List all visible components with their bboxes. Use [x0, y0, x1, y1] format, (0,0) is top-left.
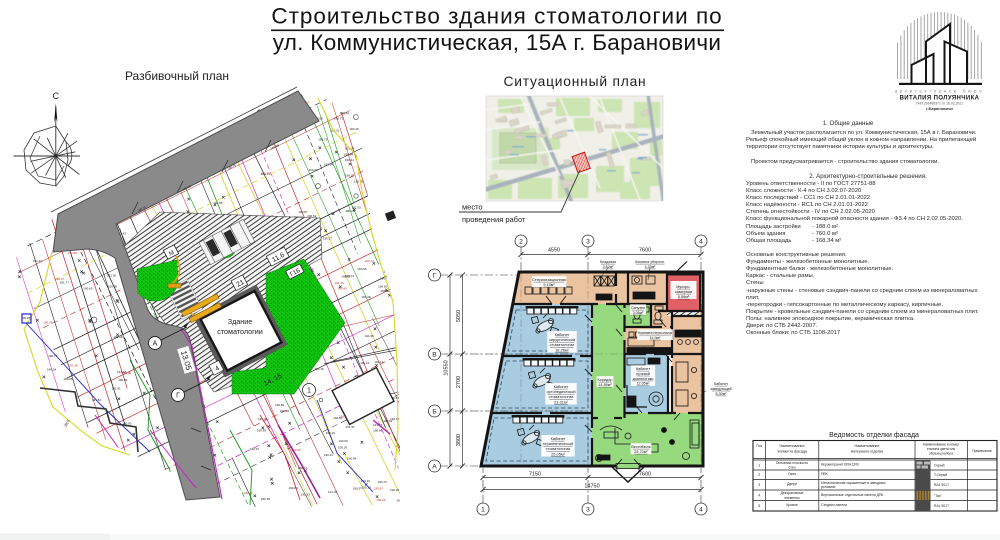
svg-text:2: 2 — [758, 473, 760, 477]
svg-text:3: 3 — [586, 238, 590, 245]
svg-text:Оконные блоки: по СТБ 1108-201: Оконные блоки: по СТБ 1108-2017 — [746, 330, 840, 336]
svg-text:190.65: 190.65 — [63, 377, 73, 381]
svg-text:Кабинет: Кабинет — [714, 382, 728, 386]
svg-text:Площадь застройки: Площадь застройки — [746, 223, 801, 230]
svg-text:архитектурное бюро: архитектурное бюро — [895, 89, 985, 94]
svg-text:ПВХ: ПВХ — [821, 472, 829, 476]
svg-text:3.05м²: 3.05м² — [633, 311, 644, 315]
svg-text:ул. Коммунистическая, 15А г. Б: ул. Коммунистическая, 15А г. Барановичи — [273, 30, 722, 55]
svg-text:5.56м²: 5.56м² — [678, 295, 690, 299]
svg-text:191.58: 191.58 — [69, 364, 79, 368]
svg-text:191.19: 191.19 — [335, 281, 345, 285]
svg-text:диагностики: диагностики — [633, 377, 654, 381]
svg-text:5: 5 — [758, 504, 760, 508]
svg-text:190.56: 190.56 — [108, 285, 118, 289]
svg-text:191.95: 191.95 — [213, 201, 223, 205]
svg-text:190.69: 190.69 — [257, 429, 267, 433]
svg-text:190.16: 190.16 — [326, 431, 336, 435]
svg-text:7150: 7150 — [529, 472, 541, 478]
svg-text:190.23: 190.23 — [345, 209, 355, 213]
svg-text:Г: Г — [176, 393, 180, 400]
svg-text:Здание: Здание — [228, 317, 253, 326]
svg-text:191.51: 191.51 — [346, 425, 356, 429]
svg-text:23.31м²: 23.31м² — [554, 399, 568, 404]
svg-text:190.20: 190.20 — [309, 168, 319, 172]
svg-text:Г: Г — [433, 272, 437, 279]
svg-text:25.05м²: 25.05м² — [551, 451, 565, 456]
svg-text:Окна: Окна — [788, 472, 796, 476]
svg-text:190.65: 190.65 — [83, 287, 93, 291]
svg-text:190.87: 190.87 — [374, 486, 384, 490]
svg-text:190.82: 190.82 — [383, 419, 393, 423]
svg-text:Мусоро-: Мусоро- — [676, 285, 691, 289]
svg-text:Декоративные: Декоративные — [781, 491, 804, 495]
svg-text:190.73: 190.73 — [334, 117, 344, 121]
svg-text:Двери: Двери — [787, 482, 797, 486]
svg-text:Комната уборочн.: Комната уборочн. — [635, 260, 665, 264]
svg-text:1: 1 — [758, 463, 760, 467]
svg-text:191.30: 191.30 — [107, 274, 117, 278]
svg-text:Класс надёжности - RC1 по СН 2: Класс надёжности - RC1 по СН 2.01.01-202… — [746, 202, 868, 208]
svg-text:190.84: 190.84 — [344, 153, 354, 157]
svg-text:190.65: 190.65 — [261, 497, 271, 501]
svg-text:191.21: 191.21 — [360, 361, 370, 365]
svg-text:191.54: 191.54 — [324, 162, 334, 166]
svg-text:8.30м²: 8.30м² — [716, 392, 728, 396]
svg-text:1: 1 — [481, 506, 485, 513]
svg-text:191.93: 191.93 — [301, 492, 311, 496]
svg-text:Класс последствий - СС1 по СН: Класс последствий - СС1 по СН 2.01.01-20… — [746, 194, 870, 201]
svg-text:191.77: 191.77 — [60, 281, 70, 285]
svg-text:190.27: 190.27 — [323, 237, 333, 241]
svg-text:территории отсутствует памятни: территории отсутствует памятники истории… — [746, 144, 934, 150]
svg-text:условиях: условиях — [821, 485, 836, 489]
svg-text:Полы: наливное эпоксидное покр: Полы: наливное эпоксидное покрытие, кера… — [746, 316, 915, 322]
svg-text:Проектом предусматривается - с: Проектом предусматривается - строительст… — [751, 159, 939, 165]
svg-text:Объем здания: Объем здания — [746, 231, 785, 237]
svg-text:10550: 10550 — [444, 360, 450, 375]
svg-text:4: 4 — [758, 494, 760, 498]
svg-text:г.Барановичи: г.Барановичи — [926, 106, 953, 111]
svg-text:А: А — [153, 341, 158, 348]
svg-text:190.28: 190.28 — [361, 295, 371, 299]
svg-text:место: место — [462, 203, 483, 212]
svg-text:7600: 7600 — [639, 248, 651, 254]
svg-text:190.56: 190.56 — [341, 275, 351, 279]
svg-text:190.26: 190.26 — [338, 445, 348, 449]
svg-text:191.81: 191.81 — [112, 387, 122, 391]
svg-text:190.90: 190.90 — [339, 439, 349, 443]
svg-text:Кладовая: Кладовая — [600, 260, 616, 264]
svg-text:Кровля: Кровля — [786, 503, 797, 507]
svg-text:Общая площадь: Общая площадь — [746, 238, 792, 244]
svg-text:190.44: 190.44 — [340, 111, 350, 115]
svg-text:заведующей: заведующей — [710, 387, 732, 391]
svg-text:Ситуационный план: Ситуационный план — [504, 74, 647, 89]
svg-text:Т.Серый: Т.Серый — [934, 473, 947, 477]
svg-text:А: А — [432, 463, 437, 470]
svg-text:Комната персонала: Комната персонала — [638, 331, 673, 335]
svg-text:Коридор: Коридор — [598, 378, 613, 382]
svg-text:стоматологии: стоматологии — [217, 327, 263, 336]
svg-text:191.42: 191.42 — [33, 259, 43, 263]
svg-text:12.05м²: 12.05м² — [637, 382, 651, 386]
svg-text:Уровень ответственности - II п: Уровень ответственности - II по ГОСТ 277… — [746, 181, 876, 187]
svg-text:Класс функциональной пожарной: Класс функциональной пожарной опасности … — [746, 215, 963, 222]
svg-text:Двери: по СТБ 2442-2007.: Двери: по СТБ 2442-2007. — [746, 323, 818, 329]
svg-text:Стены: Стены — [746, 280, 764, 286]
svg-text:191.66: 191.66 — [68, 251, 78, 255]
svg-text:ВИТАЛИЯ ПОЛУЯНЧИКА: ВИТАЛИЯ ПОЛУЯНЧИКА — [900, 96, 980, 102]
svg-text:образец колера: образец колера — [929, 452, 953, 456]
svg-text:190.21: 190.21 — [324, 453, 334, 457]
svg-text:Б: Б — [432, 408, 436, 415]
svg-text:4: 4 — [699, 238, 703, 245]
svg-text:материала отделки: материала отделки — [851, 450, 883, 454]
svg-text:эталона цвета или: эталона цвета или — [927, 447, 956, 451]
svg-text:Рельеф спокойный имеющий общий: Рельеф спокойный имеющий общий уклон в ю… — [746, 136, 976, 143]
svg-text:190.66: 190.66 — [373, 428, 383, 432]
svg-text:190.76: 190.76 — [378, 480, 388, 484]
svg-text:190.50: 190.50 — [333, 416, 343, 420]
svg-text:камерная: камерная — [675, 290, 692, 294]
svg-text:Ведомость отделки фасада: Ведомость отделки фасада — [829, 432, 919, 439]
svg-text:2: 2 — [519, 238, 523, 245]
svg-text:С: С — [53, 91, 60, 101]
svg-text:190.26: 190.26 — [376, 498, 386, 502]
svg-text:190.97: 190.97 — [250, 447, 260, 451]
svg-text:190.50: 190.50 — [378, 284, 388, 288]
svg-text:190.96: 190.96 — [357, 267, 367, 271]
svg-text:25.70м²: 25.70м² — [634, 450, 648, 454]
svg-text:14750: 14750 — [584, 484, 599, 490]
svg-text:-наружные стены - стеновые сэ: -наружные стены - стеновые сэндвич-панел… — [746, 288, 977, 294]
svg-text:- 188.0 м²: - 188.0 м² — [812, 224, 838, 230]
svg-text:3800: 3800 — [456, 434, 462, 446]
svg-text:11.9м²: 11.9м² — [650, 336, 661, 340]
svg-text:Фундаменты - железобетонные мо: Фундаменты - железобетонные монолитные. — [746, 259, 870, 265]
svg-text:2. Архитектурно-строительные р: 2. Архитектурно-строительные решения. — [809, 173, 927, 180]
svg-text:3.82м²: 3.82м² — [603, 265, 614, 269]
svg-text:Примечание: Примечание — [972, 449, 992, 453]
svg-text:Класс сложности - К-4 по СН 3.: Класс сложности - К-4 по СН 3.02.07-2020 — [746, 188, 862, 194]
svg-text:Покрытие - кровельные сэндвич-: Покрытие - кровельные сэндвич-панели со … — [746, 309, 979, 315]
svg-text:Наименование: Наименование — [780, 444, 805, 448]
svg-text:Стерилизационная: Стерилизационная — [532, 278, 566, 282]
svg-text:проведения работ: проведения работ — [462, 215, 526, 224]
svg-text:5050: 5050 — [456, 310, 462, 322]
svg-text:Керамогранит 600х1200: Керамогранит 600х1200 — [821, 463, 859, 467]
svg-text:190.18: 190.18 — [314, 367, 324, 371]
svg-text:Санузел: Санузел — [631, 306, 645, 310]
svg-text:"Тик": "Тик" — [934, 494, 943, 498]
svg-text:190.40: 190.40 — [349, 127, 359, 131]
svg-text:18.26м²: 18.26м² — [555, 347, 569, 352]
svg-text:191.95: 191.95 — [365, 334, 375, 338]
svg-text:191.19: 191.19 — [113, 335, 123, 339]
svg-text:7600: 7600 — [639, 472, 651, 478]
svg-text:4550: 4550 — [548, 248, 560, 254]
svg-text:190.29: 190.29 — [345, 174, 355, 178]
svg-text:Каркас - стальные рамы.: Каркас - стальные рамы. — [746, 273, 815, 279]
svg-text:191.45: 191.45 — [328, 490, 338, 494]
svg-text:Вестибюль: Вестибюль — [631, 445, 651, 449]
svg-text:190.20: 190.20 — [390, 488, 400, 492]
svg-text:-перегородки - гипсокартонные: -перегородки - гипсокартонные по металли… — [746, 302, 943, 308]
svg-text:Строительство здания стоматоло: Строительство здания стоматологии по — [271, 4, 722, 29]
svg-text:Серый: Серый — [934, 464, 945, 468]
svg-text:190.73: 190.73 — [365, 259, 375, 263]
svg-text:Металлические окрашенные в зав: Металлические окрашенные в заводских — [821, 481, 886, 485]
svg-text:190.59: 190.59 — [43, 321, 53, 325]
svg-text:Вертикальные отделочные панели: Вертикальные отделочные панели ДПК — [821, 493, 883, 497]
svg-text:4.35м²: 4.35м² — [645, 265, 656, 269]
svg-text:Наименование и номер: Наименование и номер — [923, 443, 959, 447]
svg-text:190.57: 190.57 — [353, 487, 363, 491]
svg-text:190.54: 190.54 — [47, 368, 57, 372]
svg-text:стен: стен — [789, 466, 796, 470]
svg-text:2700: 2700 — [456, 376, 462, 388]
svg-text:Основные конструктивные решени: Основные конструктивные решения. — [746, 252, 847, 258]
svg-text:Наименование: Наименование — [855, 444, 880, 448]
svg-text:190.83: 190.83 — [275, 403, 285, 407]
svg-text:лучевой: лучевой — [636, 372, 650, 376]
svg-text:RAL 9017: RAL 9017 — [934, 483, 949, 487]
svg-text:Разбивочный план: Разбивочный план — [125, 69, 229, 83]
svg-text:Фундаментные балки - железобет: Фундаментные балки - железобетонные моно… — [746, 266, 893, 272]
svg-text:- 168.34 м²: - 168.34 м² — [812, 238, 841, 244]
svg-text:190.77: 190.77 — [261, 171, 271, 175]
svg-text:14.89м²: 14.89м² — [598, 383, 612, 387]
svg-text:190.41: 190.41 — [345, 158, 355, 162]
svg-text:190.84: 190.84 — [118, 378, 128, 382]
svg-text:плит,: плит, — [746, 295, 760, 301]
svg-text:Сэндвич-панели: Сэндвич-панели — [821, 503, 847, 507]
svg-text:190.94: 190.94 — [347, 457, 357, 461]
svg-text:9.15м²: 9.15м² — [543, 283, 555, 287]
svg-text:Степень огнестойкости - IV по: Степень огнестойкости - IV по СН 2.02.05… — [746, 208, 876, 215]
svg-text:190.75: 190.75 — [318, 137, 328, 141]
svg-text:3: 3 — [758, 483, 760, 487]
svg-text:190.85: 190.85 — [354, 179, 364, 183]
svg-text:190.42: 190.42 — [243, 491, 253, 495]
svg-text:1: 1 — [307, 388, 311, 395]
svg-text:3: 3 — [586, 506, 590, 513]
svg-text:Кабинет: Кабинет — [636, 367, 650, 371]
svg-text:191.18: 191.18 — [117, 370, 127, 374]
svg-text:RAL 9017: RAL 9017 — [934, 504, 949, 508]
svg-text:1. Общие данные: 1. Общие данные — [823, 120, 874, 127]
svg-text:Поз: Поз — [756, 444, 762, 448]
svg-text:- 760.0 м³: - 760.0 м³ — [812, 231, 838, 237]
svg-text:Земельный участок располагаетс: Земельный участок располагается по ул. К… — [751, 129, 977, 136]
svg-text:191.68: 191.68 — [280, 409, 290, 413]
svg-text:В: В — [432, 351, 437, 358]
svg-text:191.14: 191.14 — [374, 360, 384, 364]
svg-text:Основная плоскость: Основная плоскость — [776, 461, 809, 465]
svg-text:элемента фасада: элемента фасада — [777, 450, 807, 454]
svg-text:элементы: элементы — [784, 496, 800, 500]
svg-text:190.49: 190.49 — [337, 287, 347, 291]
svg-text:4: 4 — [699, 506, 703, 513]
